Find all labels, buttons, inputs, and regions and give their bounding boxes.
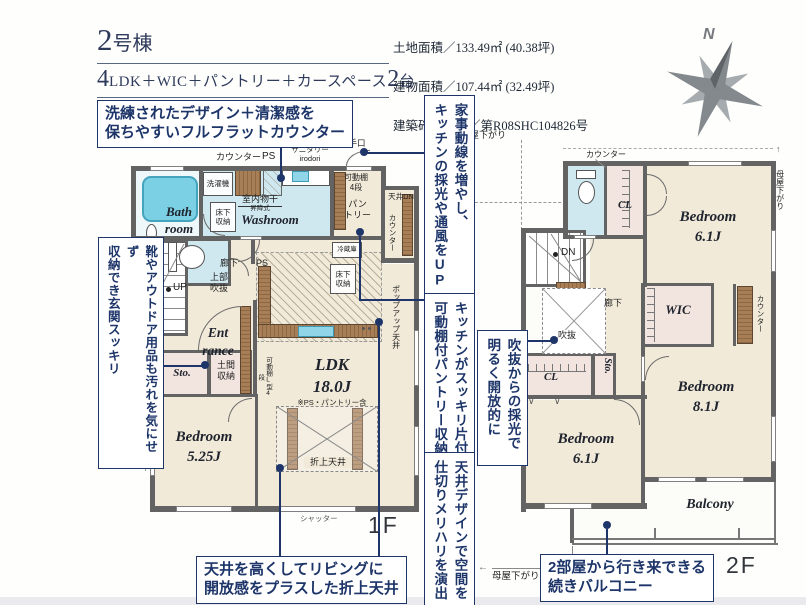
flyer-page: 2号棟 4LDK＋WIC＋パントリー＋カースペース2台 土地面積／133.49㎡… [0,0,806,605]
balcony-door [658,477,696,482]
wall-segment [563,161,776,166]
up-label: UP [173,282,187,294]
door-gap [240,236,262,240]
window [771,230,776,272]
sanitary-sink [292,171,309,182]
joubu-fukinuke-label: 上部 吹抜 [204,272,234,294]
ps-label-top: PS [262,151,275,163]
shutter-label-bottom: シャッター [300,514,338,523]
page-title: 2号棟 [97,22,153,58]
closet-rail-ticks [647,288,655,342]
moya-right-label: 母屋下がり [775,157,785,223]
faucet-dot [368,327,371,330]
plan-summary: 4LDK＋WIC＋パントリー＋カースペース2台 [97,66,415,93]
washroom-counter-wood [235,170,261,196]
wall-segment [381,258,417,263]
rouka-label-1f: 廊下 [220,258,238,269]
dn-marker-dot [553,252,558,257]
title-divider [97,63,389,64]
moya-bottom-label: 母屋下がり [492,571,540,582]
leader-dot [550,336,558,344]
leader-line [606,529,608,554]
plan-divider [97,97,389,98]
counter-v-label-1f: カウンター [388,206,397,260]
plan-text: LDK＋WIC＋パントリー＋カースペース [109,74,387,90]
room-label-sto: Sto. [158,366,206,380]
dn-label: DN [561,247,575,259]
counter-label-1f: カウンター [216,152,261,163]
roof-dashed-line [521,140,522,230]
pantry-label: パン トリー [344,199,371,221]
callout-balcony: 2部屋から行き来できる 続きバルコニー [540,554,714,602]
toilet-bowl [578,181,595,204]
toilet-tank [576,170,596,179]
tenjo-dn-label: 天井DN [384,192,418,201]
wall-segment [521,228,568,233]
compass-north-label: N [703,26,715,44]
kadou-l-label: 可動棚L型4段 [256,354,272,400]
room-label-bedroom-61-top: Bedroom 6.1J [664,208,752,247]
up-marker-dot [166,287,171,292]
leader-dot [277,174,285,182]
wall-segment [251,240,255,264]
arrow-left-icon: ← [478,562,488,574]
underfloor-storage: 床下 収納 [210,202,236,232]
refrigerator: 冷蔵庫 [332,242,362,258]
room-label-ldk: LDK 18.0J [294,354,370,398]
floor-label-2f: 2F [726,552,757,579]
leader-dot [360,148,368,156]
building-number: 2 [97,22,113,57]
window [176,506,232,512]
bifold-mark: ∨ [554,396,561,407]
wall-segment [521,395,647,399]
balcony-post [654,528,656,540]
leader-dot [356,228,364,236]
room-label-cl2: CL [534,370,568,384]
floor-label-1f: 1F [368,512,399,539]
balcony-rail [572,538,776,540]
balcony-rail [572,543,778,545]
callout-fukinuke: 吹抜からの採光で 明るく開放的に [477,330,528,466]
leader-line [359,299,424,301]
room-label-balcony: Balcony [668,496,752,514]
arrow-up-icon: ↑ [776,144,781,155]
window [544,503,592,509]
rouka-label-2f: 廊下 [604,298,622,309]
door-gap [574,235,596,239]
counter-top-label-2f: カウンター [586,150,626,160]
room-label-bedroom-81: Bedroom 8.1J [660,378,752,417]
wall-segment [733,284,736,346]
balcony-door [706,477,744,482]
window [414,426,419,476]
callout-genkan-storage: 靴やアウトドア用品も汚れを気にせず 収納でき玄関スッキリ [98,237,164,469]
ldk-note-label: ※PS・パントリー含 [288,398,376,407]
room-label-wic: WIC [656,302,700,319]
room-label-bedroom-61-bottom: Bedroom 6.1J [540,430,632,469]
door-gap [641,356,645,382]
leader-dot [201,361,209,369]
room-label-washroom: Washroom [238,212,302,229]
room-label-cl1: CL [608,198,642,212]
bifold-mark: ∨ [528,396,535,407]
room-label-bathroom: Bath room [156,204,202,238]
popup-ceiling-label: ポップアップ天井 [391,284,401,350]
room-label-bedroom-525: Bedroom 5.25J [160,428,248,467]
window [414,330,419,386]
wall-segment [381,186,418,190]
callout-ceiling-design: 天井デザインで空間を 仕切りメリハリを演出 [424,452,475,605]
leader-line [366,152,424,154]
leader-line [378,326,380,556]
balcony-post [738,528,740,540]
compass-icon [645,19,786,160]
counter-v-label-2f: カウンター [756,284,765,344]
balcony-rail [774,482,776,544]
counter-wood-2f [737,286,753,344]
oriage-label: 折上天井 [304,457,352,468]
fukinuke-label: 吹抜 [558,330,576,341]
land-area: 土地面積／133.49㎡ (40.38坪) [393,39,663,58]
window [150,166,184,171]
roof-dashed-line [470,202,566,203]
callout-kaji-dousen: 家事動線を増やし、 キッチンの採光や通風をUP [424,95,475,297]
callout-oriage-ceiling: 天井を高くしてリビングに 開放感をプラスした折上天井 [196,556,407,604]
leader-line [280,148,282,177]
faucet-dot [362,327,365,330]
leader-dot [375,318,383,326]
room-label-sto-2f: Sto. [594,358,614,374]
leader-line [359,236,361,300]
underfloor-storage: 床下 収納 [330,264,356,294]
leader-dot [276,464,284,472]
room-label-entrance: Ent rance [194,324,242,359]
ps2-label: PS [256,258,268,269]
window [771,416,776,462]
fukinuke-x-lines [542,288,606,354]
kitchen-sink [298,326,334,337]
building-suffix: 号棟 [113,33,153,55]
door-gap [346,166,372,171]
plan-count: 4 [97,66,109,92]
washing-machine: 洗濯機 [203,172,233,196]
nook-counter-wood [402,194,413,256]
kadoudana-label: 可動棚 4段 [344,173,368,192]
doma-label: 土間 収納 [210,360,242,382]
window [688,161,742,166]
leader-dot [603,521,611,529]
leader-line [279,472,281,556]
window [280,506,356,512]
wall-segment [643,161,647,287]
callout-flat-counter: 洗練されたデザイン＋清潔感を 保ちやすいフルフラットカウンター [97,100,353,148]
wall-segment [330,166,334,240]
